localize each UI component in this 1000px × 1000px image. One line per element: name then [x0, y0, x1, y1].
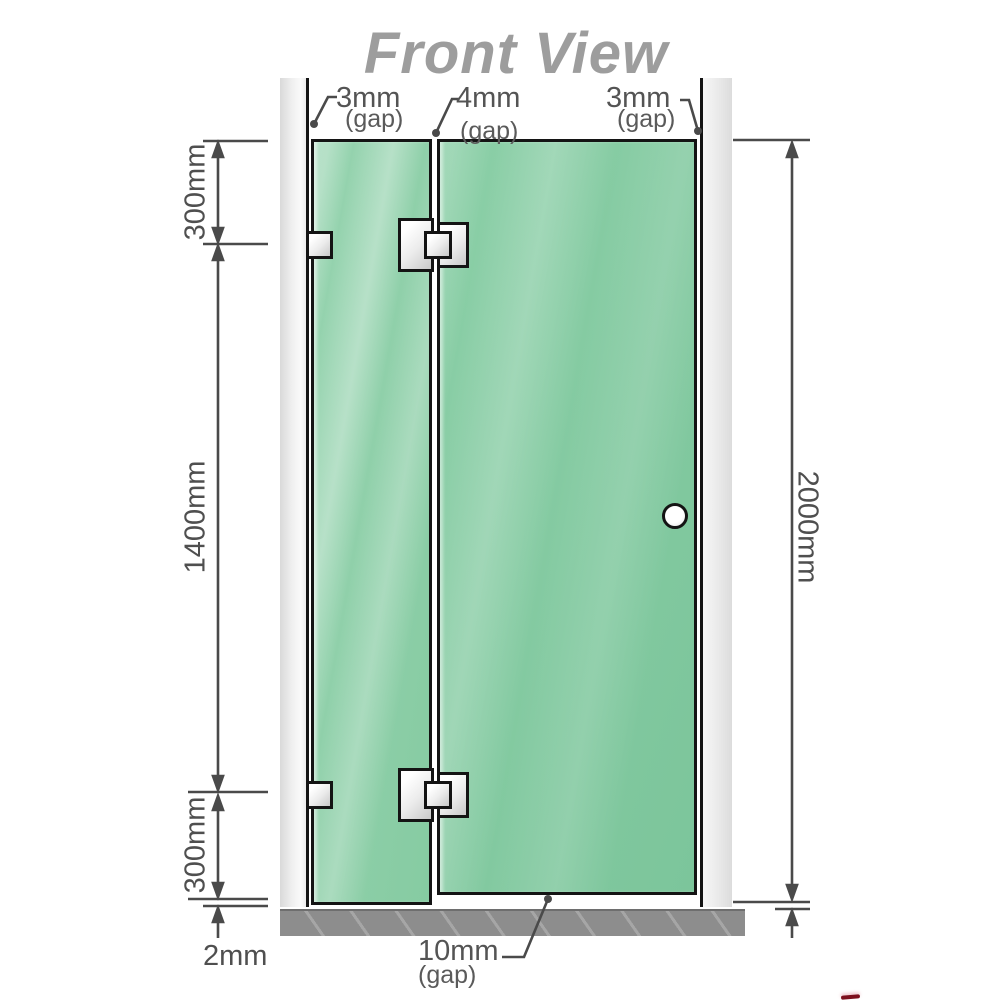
dim-bottom-2mm: [213, 908, 223, 938]
dim-label-300-top: 300mm: [180, 144, 213, 241]
front-view-diagram: Front View: [0, 0, 1000, 1000]
wall-bracket-bottom: [306, 781, 333, 809]
dim-label-300-bottom: 300mm: [180, 797, 213, 894]
gap-label-wall-right-note: (gap): [617, 105, 675, 134]
leader-gap-wall-right: [680, 100, 698, 131]
hinge-top-knuckle: [424, 231, 452, 259]
dim-left-middle-1400: [213, 246, 223, 790]
dim-left-bottom-300: [213, 796, 223, 897]
gap-label-floor-note: (gap): [418, 961, 476, 990]
annotation-layer: [0, 0, 1000, 1000]
leader-dots: [310, 120, 702, 903]
gap-label-middle-value: 4mm: [456, 82, 520, 115]
leader-gap-wall-left: [314, 97, 337, 124]
gap-label-wall-left-note: (gap): [345, 105, 403, 134]
dim-left-top-300: [213, 143, 223, 242]
dim-label-2000: 2000mm: [791, 471, 824, 584]
leader-lines: [314, 97, 698, 957]
dim-label-2mm: 2mm: [203, 940, 267, 973]
hinge-bottom-knuckle: [424, 781, 452, 809]
wall-bracket-top: [306, 231, 333, 259]
leader-gap-floor: [502, 899, 548, 957]
gap-label-middle-note: (gap): [460, 117, 518, 146]
dim-right-floor-arrow: [787, 911, 797, 938]
door-knob: [662, 503, 688, 529]
dim-label-1400: 1400mm: [180, 461, 213, 574]
